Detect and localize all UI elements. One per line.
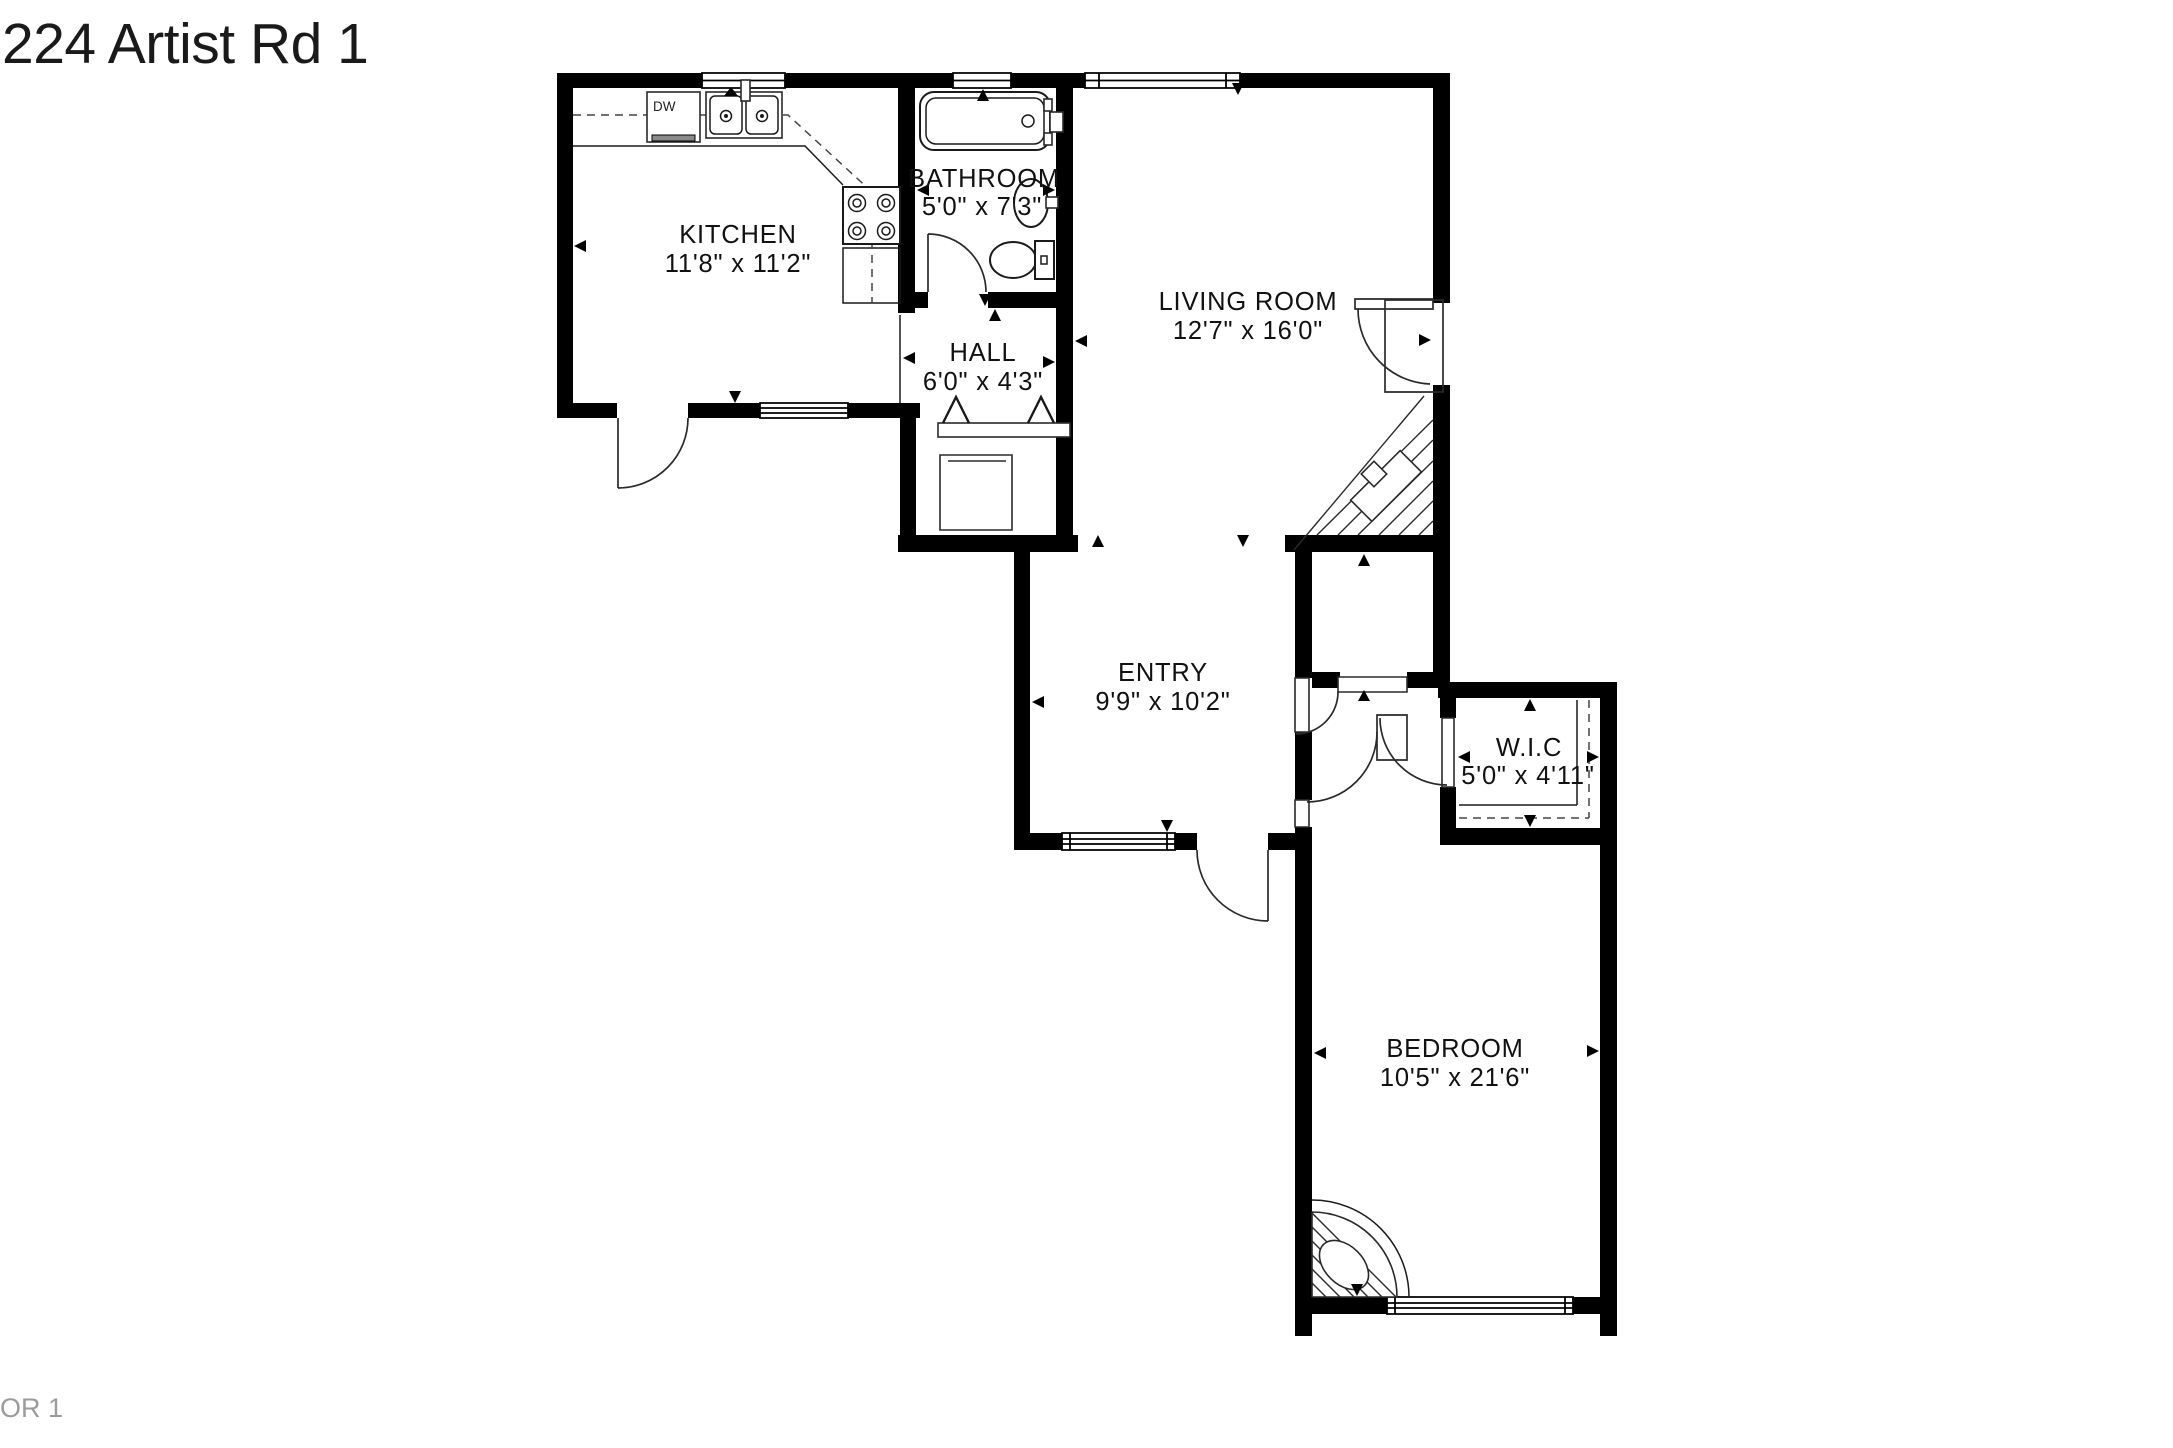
entry-dims: 9'9" x 10'2" [1095,688,1230,716]
hall-dims: 6'0" x 4'3" [923,368,1043,396]
living-room-label: LIVING ROOM [1159,288,1338,316]
bathtub [920,92,1063,150]
bathtub-knob-bottom [1044,133,1052,145]
kitchen-label: KITCHEN [679,221,797,249]
sink-faucet [741,80,750,101]
entry-window [1062,833,1175,850]
dishwasher-vent [652,135,695,141]
kitchen-dims: 11'8" x 11'2" [665,250,811,278]
kitchen-bottom-window [760,403,848,418]
entry-label: ENTRY [1118,659,1208,687]
stove [843,187,900,244]
sink-drain-left-dot [724,114,728,118]
toilet-bowl [990,242,1036,278]
wic-dims: 5'0" x 4'11" [1461,762,1594,790]
dishwasher-label: DW [653,99,676,114]
bathroom-sink-faucet [1046,197,1058,208]
bathtub-spout [1050,112,1063,132]
hall-label: HALL [950,339,1017,367]
page-title: 224 Artist Rd 1 [2,12,368,76]
toilet [990,241,1054,279]
bathroom-label: BATHROOM [908,165,1060,193]
floor-label: OR 1 [0,1393,63,1423]
floor-plan-canvas: 224 Artist Rd 1 OR 1 DW [0,0,2173,1448]
living-room-dims: 12'7" x 16'0" [1173,317,1323,345]
bathroom-window [953,73,1011,88]
toilet-tank [1035,241,1054,279]
bedroom-label: BEDROOM [1386,1035,1523,1063]
bedroom-dims: 10'5" x 21'6" [1380,1064,1530,1092]
closet-shelf [938,423,1070,437]
sink-drain-right-dot [760,114,764,118]
dishwasher: DW [647,92,700,142]
page-background [0,0,2173,1448]
living-room-window [1085,73,1240,88]
closet-unit [940,455,1012,530]
bedroom-window [1387,1297,1573,1314]
bathtub-knob-top [1044,99,1052,111]
floor-plan-page: 224 Artist Rd 1 OR 1 DW [0,0,2173,1448]
wic-label: W.I.C [1496,734,1562,762]
bathroom-dims: 5'0" x 7'3" [922,193,1042,221]
